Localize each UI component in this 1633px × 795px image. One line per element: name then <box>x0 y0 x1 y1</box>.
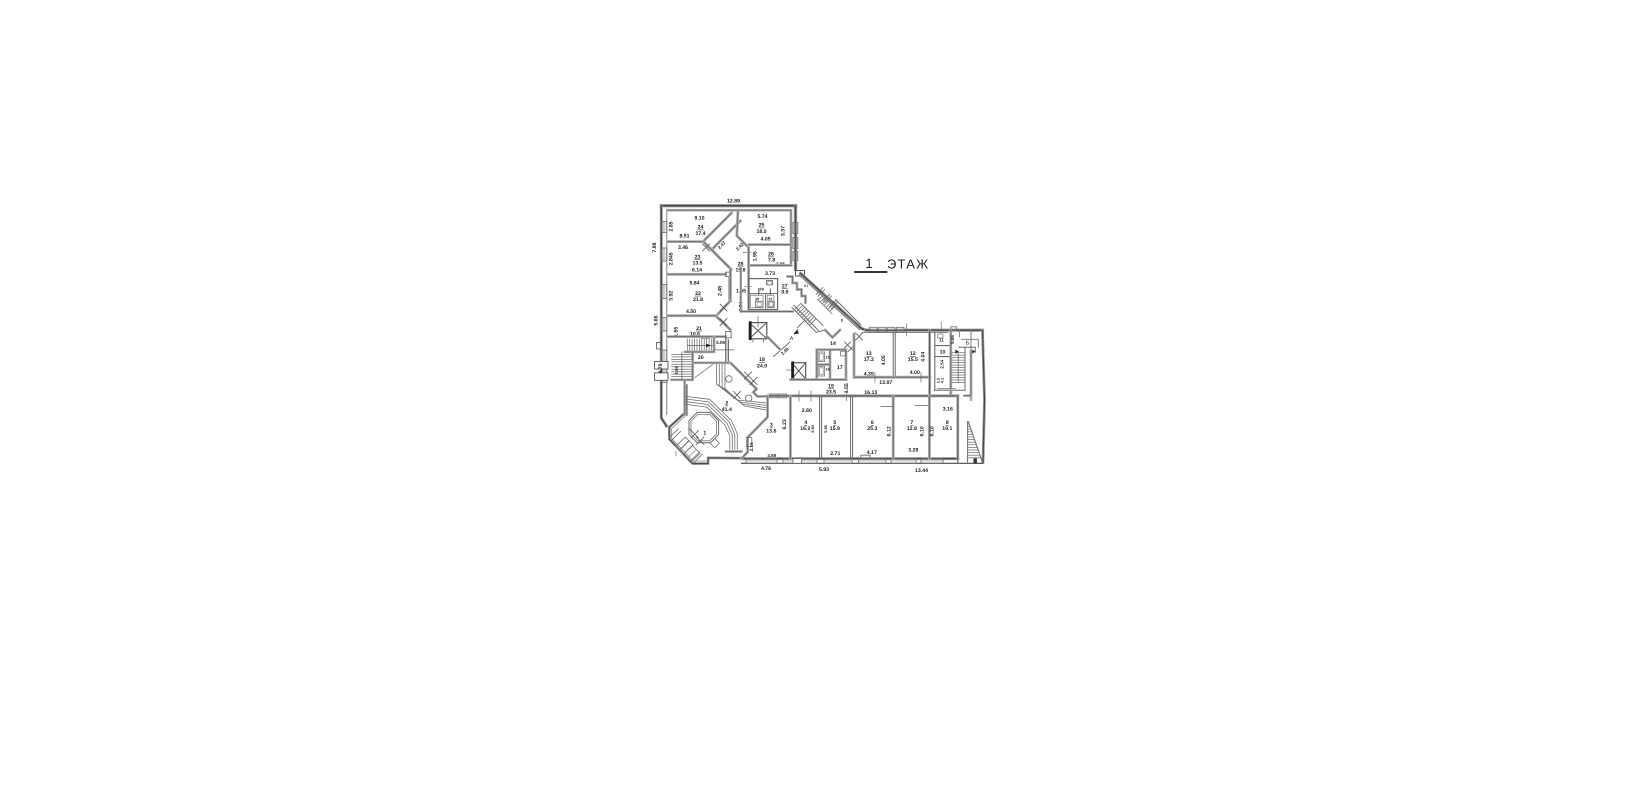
svg-text:4.04: 4.04 <box>921 352 927 362</box>
svg-text:13.44: 13.44 <box>915 468 928 474</box>
svg-text:41.4: 41.4 <box>722 407 732 413</box>
svg-text:5.93: 5.93 <box>819 467 829 473</box>
svg-text:2.85: 2.85 <box>668 221 674 231</box>
svg-text:13.5: 13.5 <box>692 261 702 267</box>
svg-text:6.14: 6.14 <box>692 268 702 274</box>
svg-text:5.06: 5.06 <box>716 340 725 345</box>
svg-text:5.74: 5.74 <box>757 214 767 220</box>
svg-text:1: 1 <box>865 256 873 271</box>
svg-text:24.9: 24.9 <box>757 363 767 369</box>
svg-text:25: 25 <box>759 223 765 229</box>
svg-text:30: 30 <box>755 297 759 302</box>
svg-text:14: 14 <box>830 341 836 347</box>
svg-text:23: 23 <box>695 254 701 260</box>
svg-text:4.76: 4.76 <box>761 466 771 472</box>
svg-text:4.00: 4.00 <box>910 370 920 376</box>
svg-text:5.66: 5.66 <box>950 335 955 344</box>
svg-text:7: 7 <box>910 420 913 426</box>
svg-text:3.66: 3.66 <box>674 365 679 374</box>
svg-text:4.50: 4.50 <box>686 309 696 315</box>
svg-text:4.05: 4.05 <box>760 237 770 243</box>
svg-text:1: 1 <box>703 430 706 436</box>
svg-text:8: 8 <box>946 420 949 426</box>
svg-text:4.1: 4.1 <box>940 377 945 383</box>
svg-text:20: 20 <box>698 355 704 361</box>
svg-text:2.48: 2.48 <box>717 286 723 296</box>
svg-text:4.79: 4.79 <box>658 363 664 373</box>
svg-text:6: 6 <box>871 420 874 426</box>
svg-text:ЭТАЖ: ЭТАЖ <box>887 257 929 272</box>
svg-text:2.54: 2.54 <box>940 359 945 368</box>
svg-text:5: 5 <box>833 420 836 426</box>
svg-text:2.80: 2.80 <box>802 408 812 414</box>
svg-text:3.28: 3.28 <box>908 447 918 453</box>
svg-text:в1: в1 <box>804 283 809 288</box>
svg-text:6.10: 6.10 <box>920 426 926 436</box>
svg-text:19.1: 19.1 <box>942 426 952 432</box>
svg-text:6.23: 6.23 <box>782 419 788 429</box>
svg-text:4: 4 <box>804 420 807 426</box>
svg-text:15.9: 15.9 <box>830 426 840 432</box>
svg-text:17.4: 17.4 <box>695 231 705 237</box>
svg-text:22: 22 <box>695 291 701 297</box>
svg-text:5.84: 5.84 <box>810 424 815 432</box>
svg-text:18: 18 <box>759 357 765 363</box>
svg-text:1.95: 1.95 <box>752 251 758 261</box>
svg-text:12.89: 12.89 <box>727 199 740 205</box>
svg-text:10: 10 <box>940 350 946 356</box>
svg-text:25.3: 25.3 <box>867 426 877 432</box>
svg-text:21.8: 21.8 <box>693 297 703 303</box>
svg-text:5.84: 5.84 <box>689 280 699 286</box>
svg-text:6.12: 6.12 <box>886 426 892 436</box>
svg-text:Б: Б <box>966 341 970 347</box>
svg-text:5.96: 5.96 <box>823 424 828 432</box>
svg-text:в: в <box>841 317 844 323</box>
svg-text:3.37: 3.37 <box>780 226 786 236</box>
svg-text:7.88: 7.88 <box>652 242 658 252</box>
svg-text:17.2: 17.2 <box>864 357 874 363</box>
svg-text:17: 17 <box>837 365 843 371</box>
svg-text:7.8: 7.8 <box>768 258 775 264</box>
svg-text:8.51: 8.51 <box>679 233 689 239</box>
svg-text:11: 11 <box>939 337 944 342</box>
svg-text:15.5: 15.5 <box>908 357 918 363</box>
svg-text:3.16: 3.16 <box>943 407 953 413</box>
svg-text:24: 24 <box>698 225 704 231</box>
svg-text:18.0: 18.0 <box>756 229 766 235</box>
svg-text:9.10: 9.10 <box>694 215 704 221</box>
svg-text:3.73: 3.73 <box>765 271 775 277</box>
svg-text:5.66: 5.66 <box>654 315 660 325</box>
svg-text:3.46: 3.46 <box>678 245 688 251</box>
svg-text:8.9: 8.9 <box>781 289 788 295</box>
svg-text:4.05: 4.05 <box>881 355 887 365</box>
svg-text:12.8: 12.8 <box>907 426 917 432</box>
svg-text:2.845: 2.845 <box>668 252 674 265</box>
svg-text:2: 2 <box>725 401 728 407</box>
svg-text:19: 19 <box>828 384 834 390</box>
svg-text:3.88: 3.88 <box>767 453 776 458</box>
svg-text:А: А <box>790 336 794 342</box>
svg-text:2.71: 2.71 <box>830 451 840 457</box>
svg-text:13.97: 13.97 <box>879 380 892 386</box>
svg-text:3.92: 3.92 <box>668 291 674 301</box>
svg-text:13.6: 13.6 <box>766 428 776 434</box>
svg-text:6.10: 6.10 <box>929 426 935 436</box>
svg-text:2.16: 2.16 <box>749 442 754 451</box>
